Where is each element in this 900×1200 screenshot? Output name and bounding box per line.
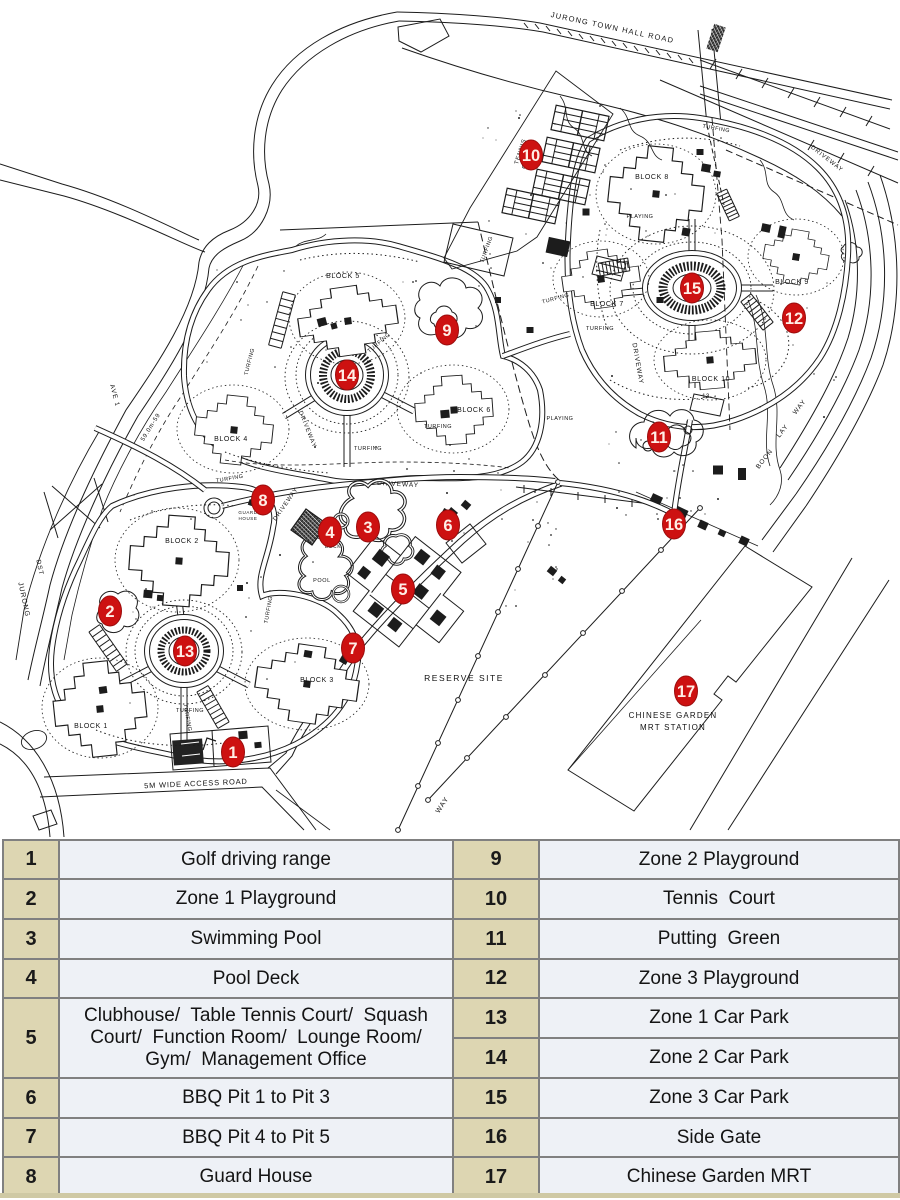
svg-text:BLOCK 10: BLOCK 10 bbox=[692, 376, 730, 383]
svg-text:PLAYING: PLAYING bbox=[627, 214, 654, 220]
svg-text:3: 3 bbox=[363, 519, 372, 537]
svg-text:17: 17 bbox=[677, 683, 695, 701]
svg-text:BLOCK 4: BLOCK 4 bbox=[214, 436, 248, 443]
svg-text:BLOCK 1: BLOCK 1 bbox=[74, 723, 108, 730]
svg-text:BLOCK 7: BLOCK 7 bbox=[590, 301, 624, 308]
svg-text:2: 2 bbox=[105, 603, 114, 621]
svg-text:TURFING: TURFING bbox=[354, 446, 382, 452]
svg-text:BLOCK 9: BLOCK 9 bbox=[775, 279, 809, 286]
svg-text:4: 4 bbox=[325, 524, 335, 542]
svg-text:15: 15 bbox=[683, 280, 701, 298]
svg-text:HOUSE: HOUSE bbox=[238, 516, 257, 521]
svg-text:TURFING: TURFING bbox=[586, 326, 614, 332]
svg-text:5: 5 bbox=[398, 581, 407, 599]
svg-text:9: 9 bbox=[442, 322, 451, 340]
svg-text:BLOCK 2: BLOCK 2 bbox=[165, 538, 199, 545]
svg-text:7: 7 bbox=[348, 640, 357, 658]
svg-text:PLAYING: PLAYING bbox=[547, 416, 574, 422]
svg-text:12: 12 bbox=[785, 310, 803, 328]
svg-text:BLOCK 5: BLOCK 5 bbox=[326, 273, 360, 280]
svg-text:BLOCK 8: BLOCK 8 bbox=[635, 174, 669, 181]
svg-text:MRT STATION: MRT STATION bbox=[640, 723, 706, 732]
svg-text:8: 8 bbox=[258, 492, 267, 510]
svg-text:RESERVE SITE: RESERVE SITE bbox=[424, 673, 504, 683]
svg-text:TURFING: TURFING bbox=[424, 424, 452, 430]
svg-text:1: 1 bbox=[228, 744, 237, 762]
svg-text:16: 16 bbox=[665, 516, 683, 534]
svg-text:6: 6 bbox=[443, 517, 452, 535]
svg-text:13: 13 bbox=[702, 394, 710, 400]
svg-text:13: 13 bbox=[176, 643, 194, 661]
svg-text:POOL: POOL bbox=[313, 578, 331, 584]
svg-text:BLOCK 3: BLOCK 3 bbox=[300, 677, 334, 684]
svg-text:14: 14 bbox=[338, 367, 357, 385]
svg-text:BLOCK 6: BLOCK 6 bbox=[457, 407, 491, 414]
svg-text:CHINESE GARDEN: CHINESE GARDEN bbox=[629, 711, 718, 720]
svg-text:10: 10 bbox=[522, 147, 540, 165]
svg-text:TURFING: TURFING bbox=[176, 708, 204, 714]
svg-text:11: 11 bbox=[650, 429, 667, 447]
